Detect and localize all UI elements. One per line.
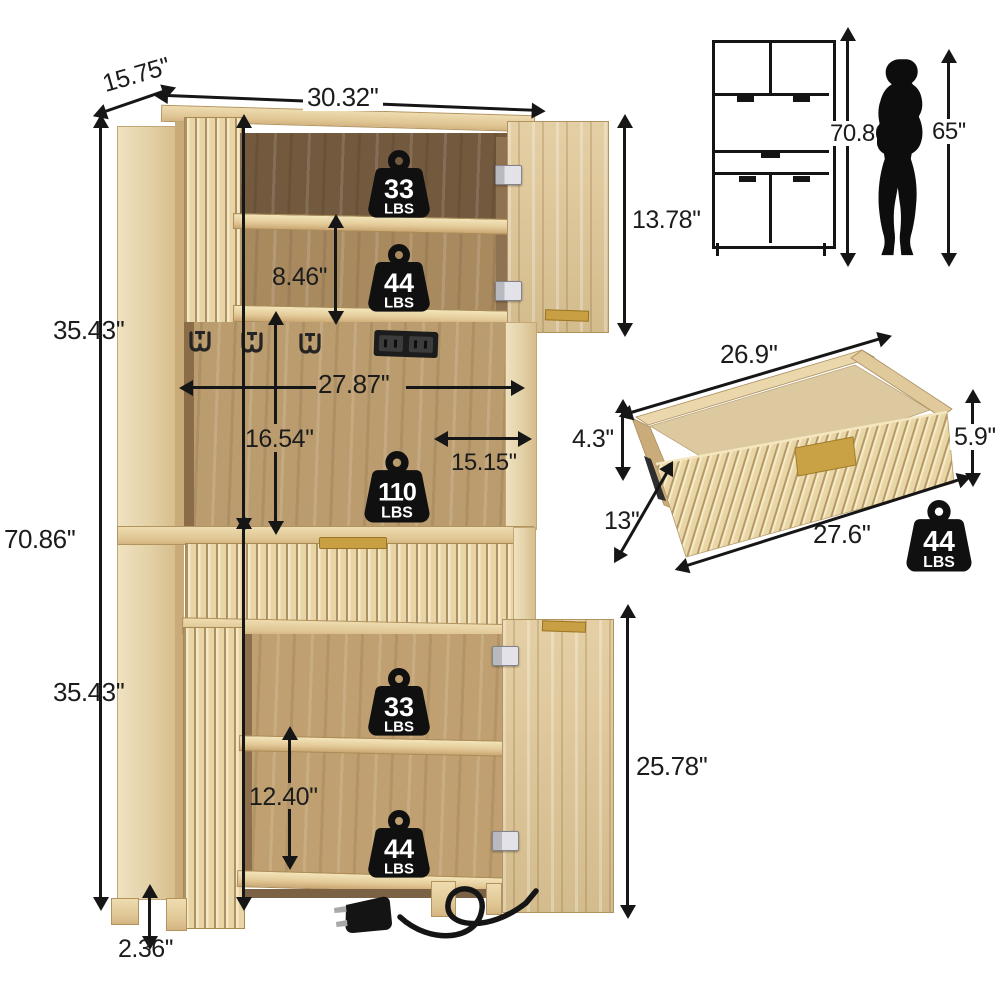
weight-value: 33 — [384, 692, 414, 722]
dim-label-lower-height: 35.43'' — [53, 679, 125, 706]
cabinet-left-side-panel — [117, 126, 177, 900]
dim-label-drawer-inner-height: 4.3'' — [572, 426, 614, 452]
weight-unit: LBS — [381, 505, 413, 522]
product-dimension-diagram: 33 LBS 44 LBS 110 LBS 33 LBS 44 — [0, 0, 1000, 1000]
drawer-right-stile — [513, 527, 536, 626]
weight-value: 44 — [384, 268, 414, 298]
front-view-leg — [716, 243, 719, 256]
dim-arrow-person-height — [947, 62, 950, 254]
power-plug-icon — [330, 875, 560, 950]
coat-hook-icon — [234, 332, 270, 362]
kettlebell-icon: 33 LBS — [366, 149, 432, 219]
coat-hook-icon — [182, 331, 218, 361]
bottom-door-gold-bracket — [542, 620, 586, 633]
weight-badge-upper-shelf: 44 LBS — [366, 243, 432, 313]
outlet-socket — [409, 336, 434, 353]
front-view-handle — [793, 96, 810, 102]
dim-label-person-height: 65'' — [928, 119, 970, 144]
weight-badge-top-shelf: 33 LBS — [366, 149, 432, 219]
bottom-door-hinge-lower — [492, 831, 519, 851]
dim-arrow-top-door-height — [623, 127, 626, 324]
weight-unit: LBS — [384, 719, 414, 736]
weight-badge-bottom-shelf: 33 LBS — [366, 667, 432, 737]
top-door-hinge-upper — [495, 165, 522, 185]
dim-arrow-total-height — [99, 127, 102, 898]
dim-arrow-drawer-inner-height — [621, 412, 624, 468]
dim-label-middle-height: 16.54'' — [245, 426, 314, 452]
kettlebell-icon: 110 LBS — [361, 450, 433, 524]
front-view-handle — [739, 176, 756, 182]
front-view-handle — [793, 176, 810, 182]
dim-arrow-bottom-shelf-top — [288, 739, 291, 783]
weight-value: 110 — [378, 479, 417, 507]
kettlebell-icon: 44 LBS — [904, 499, 974, 573]
dim-arrow-lower-height — [242, 528, 245, 898]
front-view-line — [713, 93, 829, 96]
dim-arrow-front-view-height — [846, 40, 849, 254]
front-view-outline — [712, 40, 836, 249]
middle-right-stile — [505, 322, 537, 530]
front-view-bottom-divider — [769, 175, 772, 243]
dim-label-leg-height: 2.36'' — [118, 936, 173, 962]
kettlebell-icon: 44 LBS — [366, 809, 432, 879]
weight-badge-bottom-lower: 44 LBS — [366, 809, 432, 879]
dim-arrow-leg-height — [148, 897, 151, 937]
dim-arrow-interior-width-right — [406, 386, 512, 389]
dim-label-total-height: 70.86'' — [4, 526, 76, 553]
weight-unit: LBS — [923, 554, 955, 571]
weight-value: 44 — [384, 834, 414, 864]
weight-badge-middle: 110 LBS — [361, 450, 433, 524]
top-door-gold-bracket — [545, 309, 589, 322]
dim-label-drawer-inner-length: 26.9'' — [720, 341, 778, 368]
dim-label-interior-width: 27.87'' — [318, 371, 390, 398]
front-view-leg — [823, 243, 826, 256]
dim-arrow-bottom-shelf-bottom — [288, 809, 291, 857]
kettlebell-icon: 33 LBS — [366, 667, 432, 737]
dim-label-drawer-outer-height: 5.9'' — [950, 424, 1000, 450]
top-door-hinge-lower — [495, 281, 522, 301]
weight-badge-drawer: 44 LBS — [904, 499, 974, 573]
dim-label-side-depth: 15.15'' — [451, 450, 517, 475]
power-outlet — [374, 330, 439, 358]
dim-label-bottom-door-height: 25.78'' — [636, 753, 708, 780]
cabinet-leg — [111, 898, 139, 925]
dim-arrow-upper-height — [242, 127, 245, 519]
dim-label-drawer-outer-length: 27.6'' — [813, 521, 871, 548]
weight-value: 33 — [384, 174, 414, 204]
kettlebell-icon: 44 LBS — [366, 243, 432, 313]
dim-arrow-shelf-spacing — [334, 227, 337, 312]
dim-arrow-bottom-door-height — [626, 617, 629, 906]
dim-label-bottom-shelf: 12.40'' — [249, 784, 318, 810]
bottom-left-door-open — [183, 627, 245, 929]
weight-unit: LBS — [384, 201, 414, 218]
weight-value: 44 — [923, 526, 955, 558]
front-view-top-divider — [769, 43, 772, 95]
dim-arrow-middle-height-bottom — [274, 452, 277, 522]
bottom-door-hinge-upper — [492, 646, 519, 666]
front-view-handle — [737, 96, 754, 102]
dim-label-upper-height: 35.43'' — [53, 317, 125, 344]
front-view-handle — [761, 152, 780, 158]
person-silhouette-icon — [877, 57, 929, 259]
dim-label-width: 30.32'' — [303, 84, 383, 111]
cabinet-leg — [166, 898, 187, 931]
dim-arrow-interior-width-left — [192, 386, 316, 389]
top-right-door-open — [507, 121, 609, 333]
drawer-handle — [319, 537, 387, 549]
dim-label-drawer-depth: 13'' — [604, 508, 639, 534]
dim-label-top-door-height: 13.78'' — [632, 207, 701, 233]
dim-label-shelf-spacing: 8.46'' — [272, 264, 327, 290]
weight-unit: LBS — [384, 861, 414, 878]
weight-unit: LBS — [384, 295, 414, 312]
dim-arrow-middle-height-top — [274, 324, 277, 424]
coat-hook-icon — [292, 333, 328, 363]
outlet-socket — [379, 335, 404, 352]
drawer-front — [185, 543, 515, 626]
dim-arrow-side-depth — [447, 437, 519, 440]
